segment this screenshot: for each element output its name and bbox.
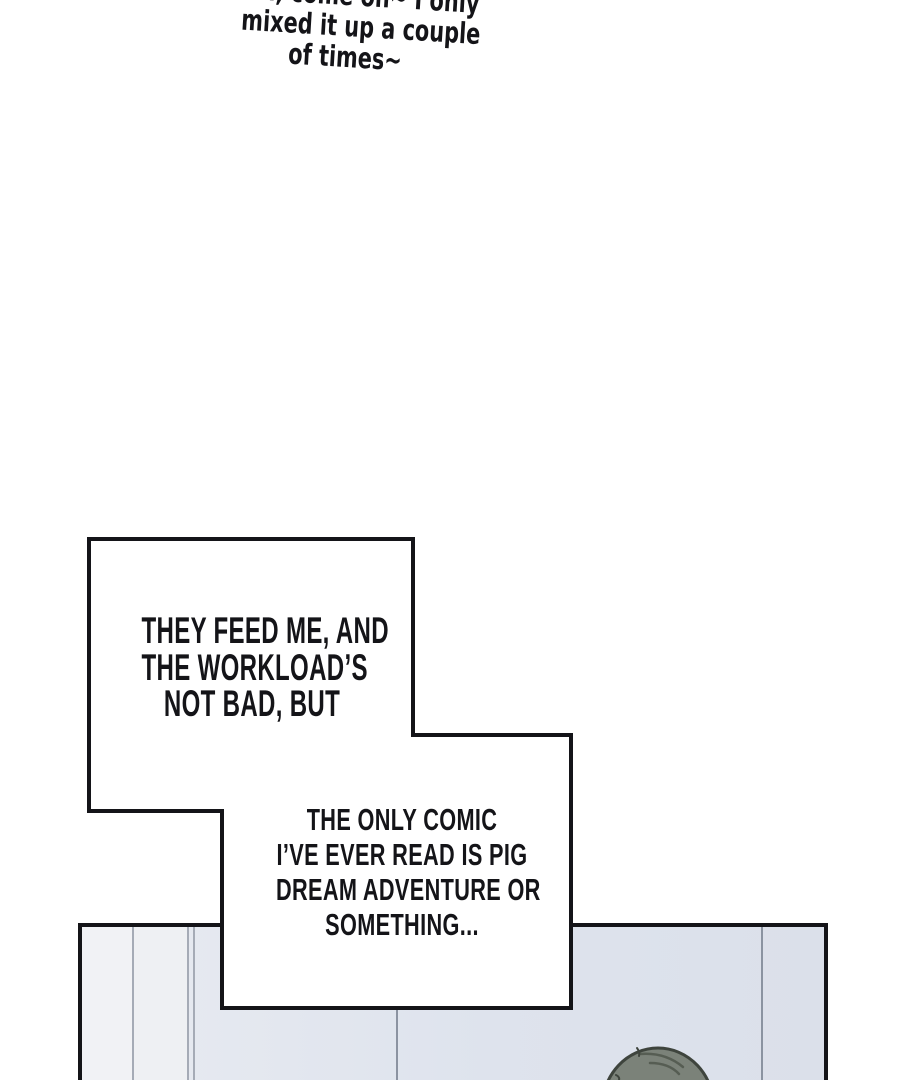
wall-seam-line: [761, 927, 763, 1080]
room-panel: [78, 923, 828, 1080]
narration-text: Oh, come on~ I only mixed it up a couple…: [239, 0, 456, 79]
wall-seam-line: [187, 927, 189, 1080]
character-head: [580, 1044, 720, 1080]
speech-line: THE WORKLOAD’S: [142, 650, 363, 687]
speech-bubble-1-text: THEY FEED ME, AND THE WORKLOAD’S NOT BAD…: [142, 613, 363, 723]
comic-page: Oh, come on~ I only mixed it up a couple…: [0, 0, 900, 1080]
speech-line: THE ONLY COMIC: [276, 802, 528, 837]
wall-middle-strip: [133, 927, 188, 1080]
speech-line: DREAM ADVENTURE OR: [276, 872, 528, 907]
speech-line: THEY FEED ME, AND: [142, 613, 363, 650]
speech-line: I’VE EVER READ IS PIG: [276, 837, 528, 872]
wall-seam-line: [193, 927, 195, 1080]
wall-left-strip: [82, 927, 133, 1080]
speech-line: NOT BAD, BUT: [142, 686, 363, 723]
speech-bubble-2-text: THE ONLY COMIC I’VE EVER READ IS PIG DRE…: [276, 802, 528, 942]
wall-seam-line: [396, 927, 398, 1080]
wall-seam-line: [132, 927, 134, 1080]
speech-line: SOMETHING...: [276, 907, 528, 942]
